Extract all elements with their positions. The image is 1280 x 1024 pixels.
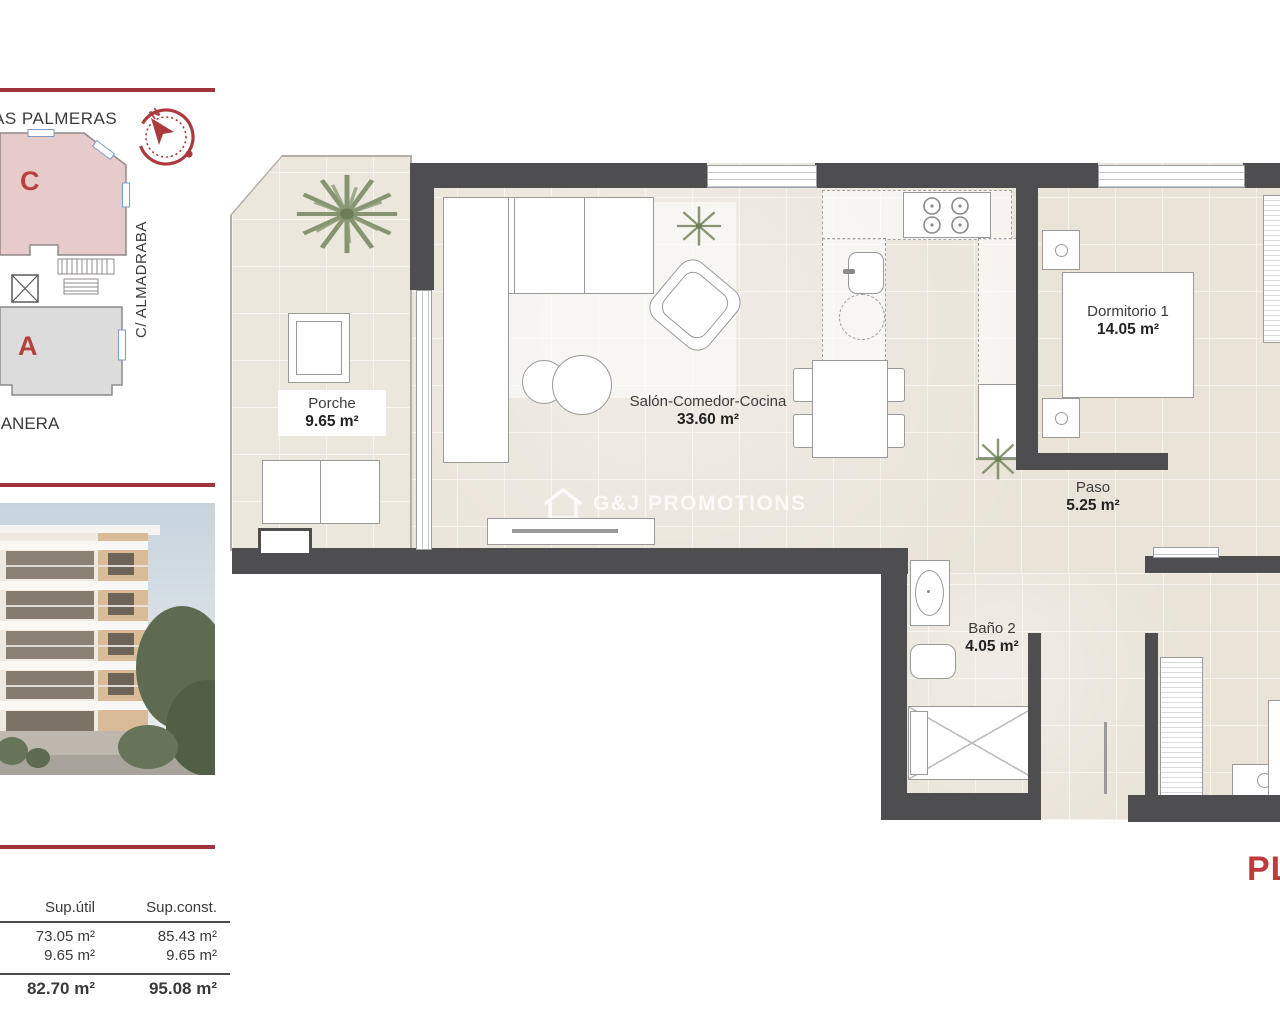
table-header-sup-const: Sup.const. xyxy=(95,898,217,917)
table-total-util: 82.70 m² xyxy=(0,979,95,998)
compass-icon: N xyxy=(130,101,202,173)
compass-north-label: N xyxy=(146,105,163,123)
wall-segment xyxy=(1145,556,1280,573)
table-rule xyxy=(0,921,230,923)
table-cell: 73.05 m² xyxy=(0,927,95,946)
block-c-label: C xyxy=(20,166,40,196)
sofa-chaise xyxy=(443,197,509,463)
watermark-text: G&J PROMOTIONS xyxy=(593,492,807,516)
plan-sheet-label: PL xyxy=(1247,850,1280,889)
palm-plant xyxy=(288,168,406,260)
building-render-image xyxy=(0,503,215,775)
surface-areas-table: Sup.útil Sup.const. 73.05 m² 85.43 m² 9.… xyxy=(0,898,230,998)
wall-segment xyxy=(881,574,907,797)
porch-bench xyxy=(262,460,380,524)
dining-table xyxy=(812,360,888,458)
table-rule xyxy=(0,973,230,975)
stove xyxy=(903,192,991,238)
window-porch-glass xyxy=(416,290,432,550)
nightstand xyxy=(1042,398,1080,438)
wall-segment xyxy=(1243,163,1280,188)
washing-machine xyxy=(839,294,885,340)
nightstand xyxy=(1042,230,1080,270)
room-label-salon: Salón-Comedor-Cocina 33.60 m² xyxy=(615,393,801,429)
wall-segment xyxy=(1016,188,1038,455)
window xyxy=(1098,165,1245,188)
block-a-label: A xyxy=(18,331,38,361)
table-cell: 9.65 m² xyxy=(95,946,217,965)
wall-segment xyxy=(815,163,1098,188)
shower-screen xyxy=(910,711,928,775)
window-mark xyxy=(28,130,54,137)
room-label-bano2: Baño 2 4.05 m² xyxy=(952,620,1032,656)
window-mark xyxy=(119,330,126,360)
palm-plant xyxy=(673,203,725,249)
wall-segment xyxy=(881,793,1041,820)
room-label-porche: Porche 9.65 m² xyxy=(278,390,386,436)
bathroom-vanity xyxy=(910,560,950,626)
door-leaf xyxy=(1104,722,1107,794)
house-icon xyxy=(542,486,584,522)
wall-segment xyxy=(1016,453,1168,470)
tv xyxy=(512,529,618,533)
room-label-dormitorio1: Dormitorio 1 14.05 m² xyxy=(1058,303,1198,339)
divider-line-middle xyxy=(0,483,215,487)
divider-line-top xyxy=(0,88,215,92)
coffee-table xyxy=(552,355,612,415)
room-label-paso: Paso 5.25 m² xyxy=(1047,479,1139,515)
porch-step xyxy=(258,528,312,556)
watermark: G&J PROMOTIONS xyxy=(542,486,807,522)
toilet xyxy=(910,644,956,679)
floor-plan-sheet: { "watermark": { "text": "G&J PROMOTIONS… xyxy=(0,0,1280,1024)
stairs xyxy=(58,259,114,274)
bathroom-fixture xyxy=(1268,700,1280,798)
table-cell: 85.43 m² xyxy=(95,927,217,946)
table-header-sup-util: Sup.útil xyxy=(0,898,95,917)
wall-segment xyxy=(410,163,707,188)
wardrobe xyxy=(1263,195,1280,343)
wall-segment xyxy=(1028,633,1041,797)
kitchen-sink xyxy=(848,252,884,294)
wardrobe xyxy=(1160,657,1203,799)
window xyxy=(707,165,817,188)
window-mark xyxy=(123,183,130,207)
window xyxy=(1153,547,1219,558)
divider-line-bottom xyxy=(0,845,215,849)
wall-segment xyxy=(410,163,434,290)
wall-segment xyxy=(1145,633,1158,797)
wall-segment xyxy=(232,548,908,574)
table-cell: 9.65 m² xyxy=(0,946,95,965)
table-total-const: 95.08 m² xyxy=(95,979,217,998)
porch-table xyxy=(288,313,350,383)
wall-segment xyxy=(1128,795,1280,822)
